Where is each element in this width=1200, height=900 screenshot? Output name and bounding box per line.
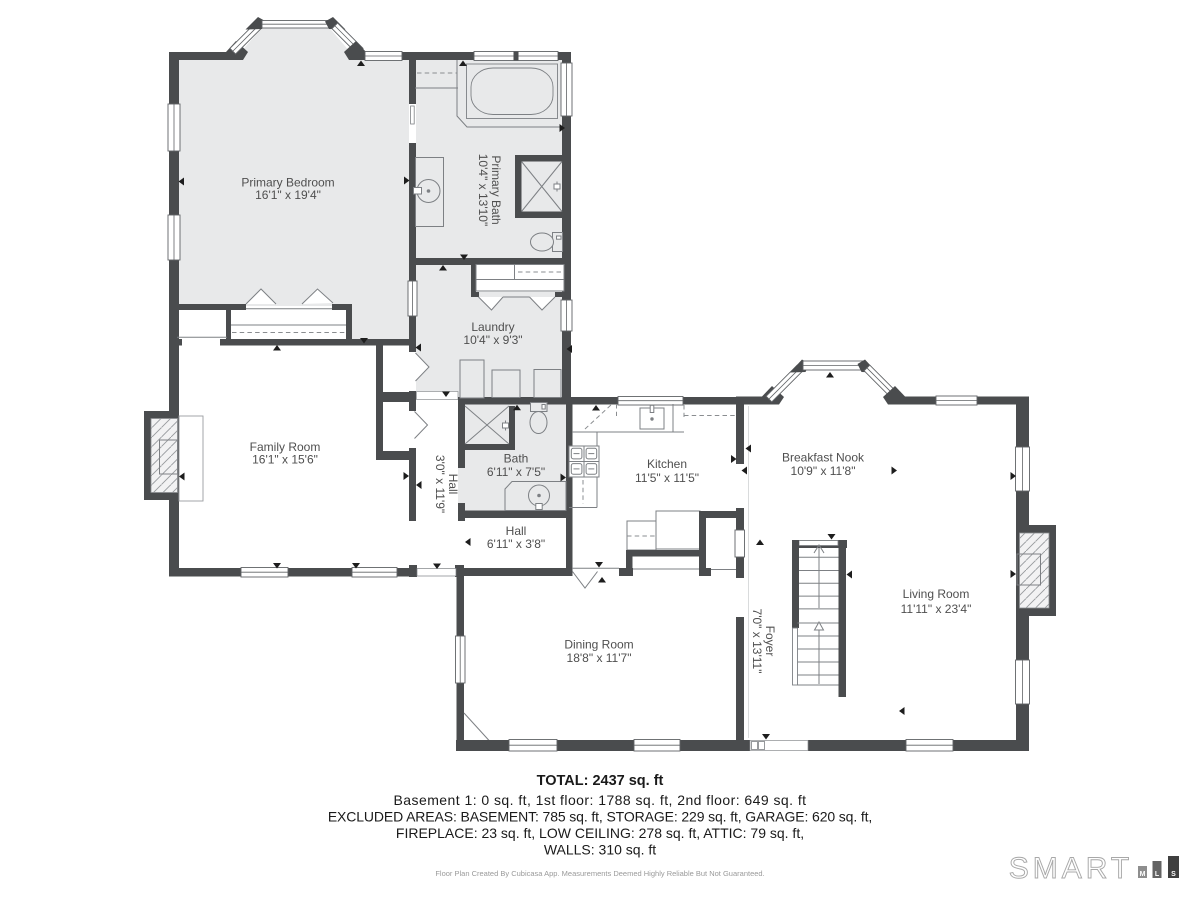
svg-text:Hall: Hall [506, 524, 527, 538]
svg-text:Primary Bath: Primary Bath [489, 155, 503, 224]
svg-text:3'0" x 11'9": 3'0" x 11'9" [433, 455, 447, 513]
svg-text:Living Room: Living Room [903, 587, 970, 601]
svg-text:Bath: Bath [504, 452, 529, 466]
svg-text:10'4" x 13'10": 10'4" x 13'10" [476, 154, 490, 227]
svg-text:18'8" x 11'7": 18'8" x 11'7" [567, 651, 632, 665]
svg-text:Laundry: Laundry [471, 320, 514, 334]
svg-text:10'4" x 9'3": 10'4" x 9'3" [463, 333, 522, 347]
svg-text:M: M [1140, 871, 1146, 878]
svg-text:Floor Plan Created By Cubicasa: Floor Plan Created By Cubicasa App. Meas… [435, 869, 764, 878]
svg-text:Kitchen: Kitchen [647, 457, 687, 471]
svg-text:7'0" x 13'11": 7'0" x 13'11" [750, 609, 764, 674]
svg-text:11'11" x 23'4": 11'11" x 23'4" [901, 602, 972, 616]
svg-text:Breakfast Nook: Breakfast Nook [782, 451, 865, 465]
svg-text:10'9" x 11'8": 10'9" x 11'8" [791, 464, 856, 478]
svg-text:L: L [1155, 871, 1160, 878]
svg-text:S: S [1171, 871, 1176, 878]
svg-text:FIREPLACE: 23 sq. ft, LOW CEIL: FIREPLACE: 23 sq. ft, LOW CEILING: 278 s… [396, 825, 804, 841]
svg-text:WALLS: 310 sq. ft: WALLS: 310 sq. ft [544, 842, 656, 858]
svg-text:Foyer: Foyer [763, 626, 777, 657]
svg-text:Basement 1: 0 sq. ft, 1st floo: Basement 1: 0 sq. ft, 1st floor: 1788 sq… [393, 792, 806, 808]
svg-text:16'1" x 15'6": 16'1" x 15'6" [252, 453, 318, 467]
svg-text:6'11" x 3'8": 6'11" x 3'8" [487, 537, 545, 551]
svg-text:6'11" x 7'5": 6'11" x 7'5" [487, 465, 545, 479]
svg-text:Dining Room: Dining Room [564, 638, 633, 652]
svg-text:SMART: SMART [1009, 852, 1133, 885]
svg-text:EXCLUDED AREAS: BASEMENT: 785: EXCLUDED AREAS: BASEMENT: 785 sq. ft, ST… [328, 809, 872, 825]
svg-text:TOTAL: 2437 sq. ft: TOTAL: 2437 sq. ft [537, 773, 664, 789]
svg-text:16'1" x 19'4": 16'1" x 19'4" [255, 188, 321, 202]
svg-text:Hall: Hall [446, 474, 460, 495]
svg-text:11'5" x 11'5": 11'5" x 11'5" [635, 471, 699, 485]
